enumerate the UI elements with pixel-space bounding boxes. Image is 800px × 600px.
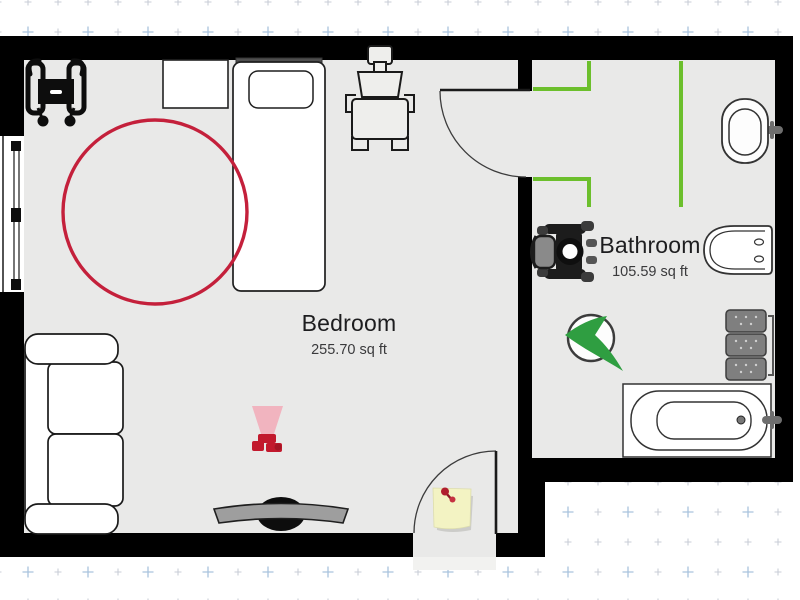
toilet[interactable] (704, 226, 772, 274)
nightstand[interactable] (163, 60, 228, 108)
interior-door-gap (518, 91, 532, 177)
exterior-door-step (413, 557, 496, 570)
wall-bathroom-bottom[interactable] (532, 458, 793, 482)
wall-left-lower[interactable] (0, 292, 24, 557)
storage-shelves[interactable] (726, 310, 773, 380)
single-bed[interactable] (233, 58, 325, 291)
bathtub[interactable] (623, 384, 782, 457)
wall-right[interactable] (775, 36, 793, 482)
floor-plan-canvas: Bedroom 255.70 sq ft Bathroom 105.59 sq … (0, 0, 800, 600)
wall-left-upper[interactable] (0, 36, 24, 136)
loveseat-sofa[interactable] (25, 334, 123, 534)
wall-bottom-left[interactable] (0, 533, 413, 557)
window[interactable] (0, 136, 24, 292)
sticky-note-icon[interactable] (433, 488, 473, 533)
wall-divider-upper[interactable] (518, 60, 532, 91)
wall-divider-lower[interactable] (518, 177, 532, 533)
exterior-door-threshold (413, 533, 496, 557)
bed-pillow (249, 71, 313, 108)
wall-top[interactable] (0, 36, 793, 60)
